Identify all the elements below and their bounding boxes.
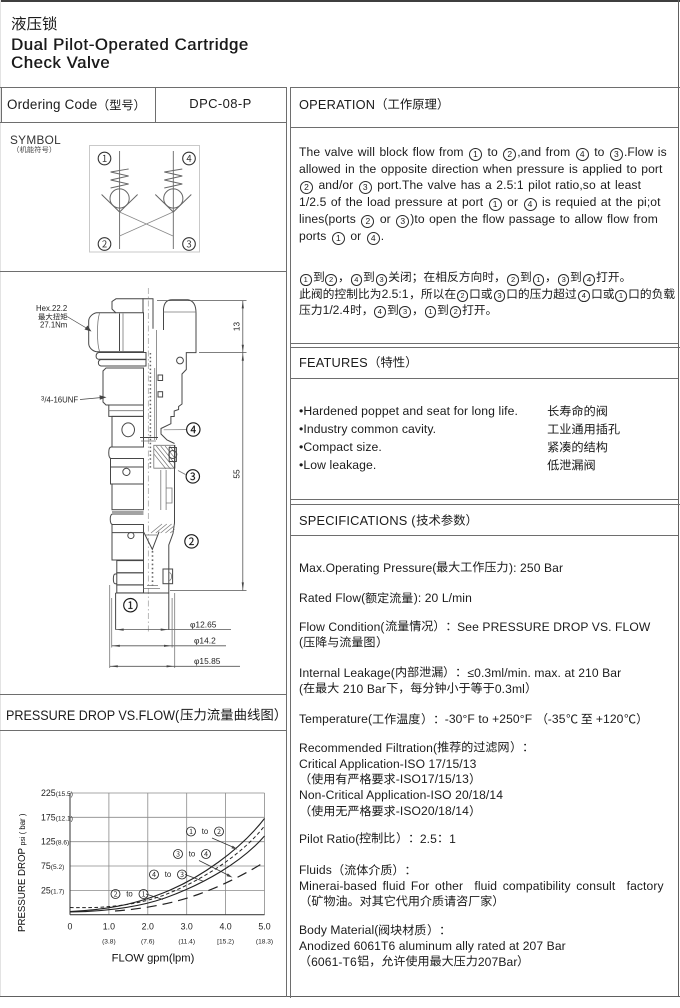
svg-text:to: to bbox=[189, 850, 196, 859]
svg-text:25(1.7): 25(1.7) bbox=[41, 885, 64, 895]
svg-text:75(5.2): 75(5.2) bbox=[41, 861, 64, 871]
svg-text:0: 0 bbox=[68, 922, 73, 932]
svg-text:(3.8): (3.8) bbox=[102, 939, 116, 946]
svg-text:225(15.5): 225(15.5) bbox=[41, 788, 73, 798]
svg-text:55: 55 bbox=[233, 469, 242, 479]
svg-text:2.0: 2.0 bbox=[142, 922, 154, 932]
svg-text:4.0: 4.0 bbox=[219, 922, 231, 932]
svg-text:5.0: 5.0 bbox=[258, 922, 270, 932]
svg-text:27.1Nm: 27.1Nm bbox=[40, 321, 67, 330]
svg-text:PRESSURE DROP psi ( bar ): PRESSURE DROP psi ( bar ) bbox=[17, 813, 28, 932]
svg-text:φ14.2: φ14.2 bbox=[194, 636, 216, 646]
svg-text:1.0: 1.0 bbox=[103, 922, 115, 932]
svg-text:to: to bbox=[126, 890, 133, 899]
svg-text:[15.2): [15.2) bbox=[217, 939, 234, 946]
svg-text:to: to bbox=[165, 870, 172, 879]
svg-text:φ12.65: φ12.65 bbox=[190, 619, 217, 629]
svg-text:3/4-16UNF: 3/4-16UNF bbox=[41, 396, 78, 405]
svg-text:125(8.6): 125(8.6) bbox=[41, 837, 69, 847]
svg-text:Hex.22.2: Hex.22.2 bbox=[36, 304, 67, 313]
svg-text:(18.3): (18.3) bbox=[256, 939, 273, 946]
svg-text:175(12.1): 175(12.1) bbox=[41, 812, 73, 822]
svg-text:φ15.85: φ15.85 bbox=[194, 656, 221, 666]
svg-text:13: 13 bbox=[233, 322, 242, 332]
svg-text:(11.4): (11.4) bbox=[178, 939, 195, 946]
svg-text:FLOW gpm(lpm): FLOW gpm(lpm) bbox=[112, 953, 195, 965]
svg-text:3.0: 3.0 bbox=[181, 922, 193, 932]
svg-text:to: to bbox=[202, 827, 209, 836]
svg-text:(7.6): (7.6) bbox=[141, 939, 155, 946]
